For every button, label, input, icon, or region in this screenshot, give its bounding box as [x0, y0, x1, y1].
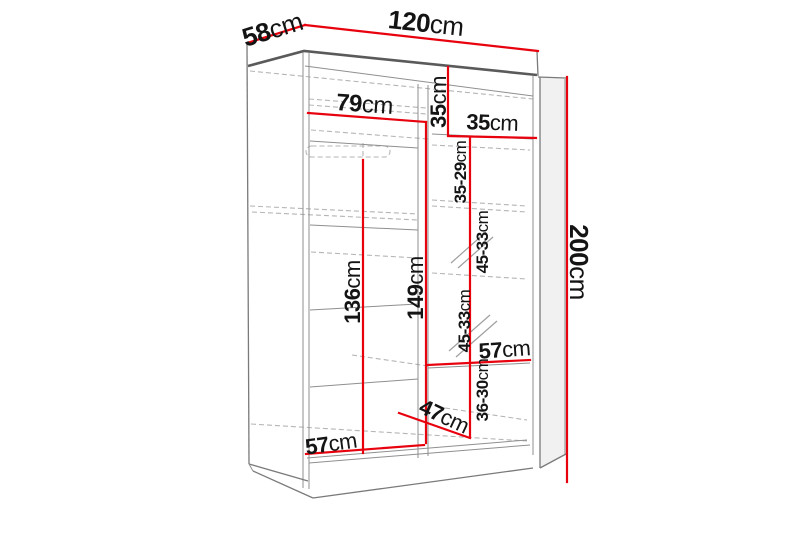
label-top-shelf-width: 35cm [466, 109, 519, 136]
label-left-section-width: 79cm [335, 89, 393, 120]
label-top-shelf-height: 35cm [426, 76, 451, 128]
hanging-rod [306, 146, 390, 157]
label-bottom-depth: 47cm [415, 394, 473, 439]
label-right-inner-height: 149cm [403, 256, 428, 320]
diagram-canvas: 58cm 120cm 200cm 79cm 35cm 35cm 35-29cm … [0, 0, 800, 533]
label-shelf-zone-2: 45-33cm [473, 210, 492, 273]
plinth-bottom-edge [313, 468, 533, 498]
label-bottom-zone-height: 36-30cm [473, 358, 492, 421]
top-right-corner [537, 51, 538, 76]
wardrobe-dimension-diagram: 58cm 120cm 200cm 79cm 35cm 35cm 35-29cm … [0, 0, 800, 533]
dimension-lines [247, 25, 567, 482]
label-shelf-zone-1: 35-29cm [451, 140, 470, 203]
left-top-shelf [310, 141, 418, 148]
label-shelf-zone-3: 45-33cm [455, 289, 474, 352]
left-outer-edge [247, 44, 249, 464]
right-side-panel-face [540, 77, 566, 468]
label-hanging-height: 136cm [340, 260, 365, 324]
label-depth: 58cm [239, 6, 307, 53]
top-board-edge [248, 51, 537, 75]
dimension-line-top-shelf-width [448, 136, 536, 138]
label-height: 200cm [564, 224, 594, 300]
